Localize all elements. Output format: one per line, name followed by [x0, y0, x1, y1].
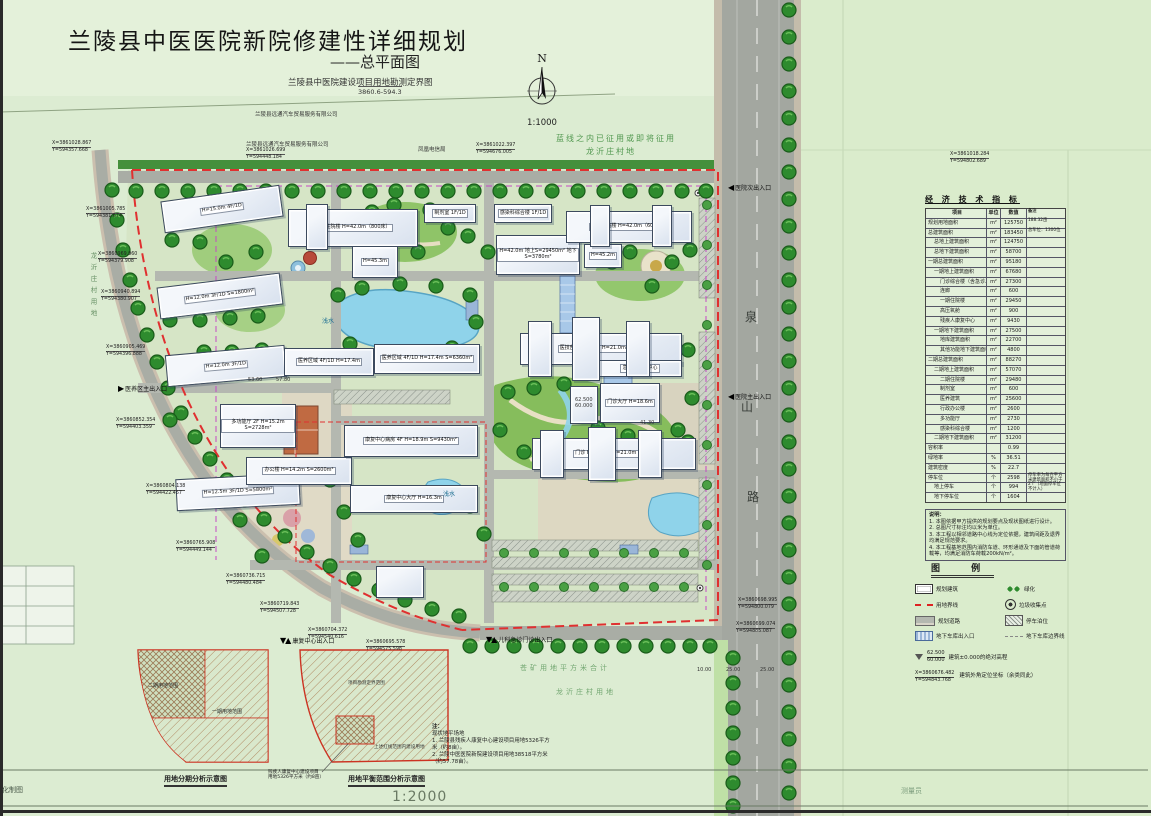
building-label: 康复中心大厅 H=16.3m	[384, 495, 444, 504]
bottom-note-line: 现状地平场地	[432, 731, 550, 738]
map-annotation: 60.000	[575, 403, 593, 409]
table-row: 停车位 个 2598 停车率为每百平方米建筑面积不小于2个（地面停车位不计入）	[926, 473, 1065, 483]
planned-building-symbol	[915, 584, 933, 594]
survey-range-label: 项目勘测定界范围	[348, 680, 385, 686]
site-plan-canvas: 兰陵县中医医院新院修建性详细规划 ——总平面图 兰陵县中医院建设项目用地勘测定界…	[0, 0, 1151, 816]
coordinate-callout: X=3860699.074 Y=594885.087	[736, 622, 775, 634]
map-annotation: 测量员	[901, 786, 922, 796]
bottom-note-line: 米（约8亩）。	[432, 745, 550, 752]
building	[528, 321, 552, 377]
map-annotation: 蓝线之内已征用或即将征用	[556, 133, 676, 144]
building	[540, 430, 564, 478]
building-label: 门诊大厅 H=18.6m	[605, 399, 655, 408]
indicator-table: 项目 单位 数值 备注 规划用地面积 m² 125750 188.32亩 总建筑…	[925, 208, 1066, 503]
table-row: 总地上建筑面积 m² 124750	[926, 237, 1065, 247]
table-row: 残疾人康复中心 m² 9430	[926, 316, 1065, 326]
legend-item: 规划建筑	[915, 584, 1003, 594]
building	[306, 204, 328, 250]
coordinate-callout: X=3861028.867 Y=594357.668	[52, 141, 91, 153]
corner-label: 建筑外角定位坐标（余类同此）	[959, 671, 1036, 679]
table-row: 二期地上建筑面积 m² 57070	[926, 365, 1065, 375]
table-row: 一期住院楼 m² 29450	[926, 296, 1065, 306]
building: 康复中心大厅 H=16.3m	[350, 485, 478, 513]
building-label: 制剂室 1F/1D	[432, 209, 467, 218]
table-row: 地下停车位 个 1604	[926, 492, 1065, 502]
map-annotation: 泉	[745, 308, 757, 325]
building-label: H=15.0m 4F/1D	[199, 202, 244, 217]
building-label: H=45.3m	[361, 258, 389, 267]
entrance-label: 医养区主出入口	[125, 384, 167, 393]
bottom-note: 注： 现状地平场地1. 兰陵县残疾人康复中心建设项目用地5326平方米（约8亩）…	[432, 724, 550, 766]
legend-label: 停车泊位	[1026, 617, 1048, 625]
map-annotation: 化制图	[2, 785, 23, 795]
coordinate-callout: X=3860940.894 Y=594380.907	[101, 290, 140, 302]
coordinate-callout: X=3860905.469 Y=594396.888	[106, 345, 145, 357]
bottom-note-line: 2. 兰陵中医医院新院建设项目用地38518平方米	[432, 752, 550, 759]
legend-label: 地下车库出入口	[936, 632, 975, 640]
legend-label: 地下车库边界线	[1026, 632, 1065, 640]
rehab-project-callout: 残疾人康复中心建设项目 用地5326平方米（约8亩）	[268, 770, 324, 781]
table-row: 多功能厅 m² 2730	[926, 414, 1065, 424]
building	[626, 321, 650, 377]
entrance-arrow-icon: ◀	[728, 184, 733, 192]
entrance-marker: ▼▲ 康复中心出入口	[280, 636, 334, 645]
building: 医养区域 4F/1D H=17.4m S=6360m²	[374, 344, 480, 374]
table-row: 地库建筑面积 m² 22700	[926, 335, 1065, 345]
map-annotation: 53.60	[248, 377, 262, 383]
entrance-arrow-icon: ◀	[728, 393, 733, 401]
table-row: 一期地下建筑面积 m² 27500	[926, 326, 1065, 336]
building-label: 多功能厅 2F H=15.2m S=2728m²	[221, 419, 295, 434]
table-row: 感染科综合楼 m² 1200	[926, 424, 1065, 434]
building-label: 康复中心病房 4F H=18.9m S=9430m²	[363, 437, 459, 446]
legend-item: 地下车库边界线	[1005, 631, 1097, 641]
building	[376, 566, 424, 598]
phase1-area-label: 一期用地范围	[212, 708, 242, 715]
corner-coordinate-note: X=3860676.482 Y=594843.768 建筑外角定位坐标（余类同此…	[915, 671, 1105, 683]
table-row: 二期住院楼 m² 29480	[926, 375, 1065, 385]
building	[588, 427, 616, 481]
greenery-symbol	[1005, 585, 1021, 593]
table-row: 容积率 0.99	[926, 443, 1065, 453]
table-row: 一期总建筑面积 m² 95180	[926, 257, 1065, 267]
map-annotation: 兰陵县远通汽车贸易服务有限公司	[246, 140, 329, 148]
table-row: 总地下建筑面积 m² 58700	[926, 247, 1065, 257]
legend-label: 绿化	[1024, 585, 1035, 593]
notes-lines: 1. 本图依据甲方提供的规划要点及现状图纸进行设计。2. 总图尺寸标注均以米为单…	[929, 519, 1062, 559]
legend-item: 绿化	[1005, 584, 1097, 594]
page-subtitle: ——总平面图	[330, 51, 420, 72]
building-label: H=45.2m	[589, 252, 617, 261]
survey-code: 3860.6-594.3	[358, 86, 402, 96]
building	[652, 205, 672, 247]
building: 门诊大厅 H=18.6m	[600, 383, 660, 423]
entrance-arrow-icon: ▼▲	[486, 636, 496, 644]
entrance-marker: ◀ 医院次出入口	[728, 183, 771, 192]
elevation-label: 建筑±0.000的绝对高程	[949, 653, 1008, 661]
table-row: 医养建筑 m² 25600	[926, 394, 1065, 404]
table-row: 制剂室 m² 600	[926, 384, 1065, 394]
building: 制剂室 1F/1D	[424, 204, 476, 223]
table-title: 经 济 技 术 指 标	[925, 194, 1066, 205]
entrance-label: 康复中心出入口	[292, 636, 334, 645]
table-row: 门诊综合楼（含急诊、医技） m² 27300	[926, 277, 1065, 287]
map-annotation: 41.30	[640, 420, 654, 426]
table-row: 绿地率 % 36.51	[926, 453, 1065, 463]
building-label: H=42.0m 地上S=29450m² 地下S=3780m²	[497, 248, 579, 263]
elevation-mark-icon	[915, 654, 923, 660]
phase-inset-caption: 用地分期分析示意图	[164, 774, 227, 787]
map-annotation: 兰陵县远通汽车贸易服务有限公司	[255, 110, 338, 118]
table-row: 总建筑面积 m² 183450 总车位：1300位	[926, 228, 1065, 238]
table-row: 规划用地面积 m² 125750 188.32亩	[926, 218, 1065, 228]
building: 一期住院楼 H=42.0m（600床）	[566, 211, 692, 243]
map-annotation: 25.00	[726, 667, 740, 673]
coordinate-callout: X=3861018.284 Y=594802.689	[950, 152, 989, 164]
map-annotation: 25.00	[760, 667, 774, 673]
legend-label: 用地界线	[936, 601, 958, 609]
entrance-label: 医院主出入口	[735, 392, 771, 401]
table-row: 二期地下建筑面积 m² 31200	[926, 433, 1065, 443]
coordinate-callout: X=3861005.785 Y=594381.674	[86, 207, 125, 219]
legend-item: 用地界线	[915, 599, 1003, 610]
building: 感染科综合楼 1F/1D	[494, 204, 552, 223]
building-label: H=12.0m 3F/1D S=1800m²	[183, 287, 256, 305]
garage-entry-symbol	[915, 631, 933, 641]
building: 多功能厅 2F H=15.2m S=2728m²	[220, 404, 296, 448]
bottom-note-line: （约57.78亩）。	[432, 759, 550, 766]
legend-title: 图 例	[931, 561, 994, 578]
notes-title: 说明：	[929, 512, 1062, 519]
building: H=45.2m	[584, 244, 622, 268]
note-line: 2. 总图尺寸标注均以米为单位。	[929, 525, 1062, 532]
compass-icon	[522, 65, 562, 113]
entrance-marker: ▶ 医养区主出入口	[118, 384, 167, 393]
map-annotation: 龙沂庄村用地	[556, 687, 616, 697]
legend-item: 垃圾收集点	[1005, 599, 1097, 610]
map-annotation: 10.00	[697, 667, 711, 673]
coordinate-callout: X=3860852.354 Y=594403.359	[116, 418, 155, 430]
coordinate-callout: X=3861026.699 Y=594448.184	[246, 148, 285, 160]
map-annotation: 浅水	[322, 316, 334, 325]
table-row: 二期总建筑面积 m² 88270	[926, 355, 1065, 365]
building: 康复中心病房 4F H=18.9m S=9430m²	[344, 425, 478, 457]
coordinate-callout: X=3860969.960 Y=594379.908	[98, 252, 137, 264]
legend-item: 地下车库出入口	[915, 631, 1003, 641]
building-label: H=12.0m 3F/1D	[204, 360, 249, 373]
table-row: 一期地上建筑面积 m² 67680	[926, 267, 1065, 277]
legend: 图 例 规划建筑 绿化 用地界线	[915, 556, 1105, 683]
table-row: 高压氧舱 m² 900	[926, 306, 1065, 316]
corner-y: Y=594843.768	[915, 678, 951, 683]
building	[638, 430, 662, 478]
parking-symbol	[1005, 615, 1023, 626]
coordinate-callout: X=3860736.715 Y=594480.484	[226, 574, 265, 586]
building: H=45.3m	[352, 246, 398, 278]
building-label: 办公楼 H=14.2m S=2600m²	[262, 467, 335, 476]
design-notes: 说明： 1. 本图依据甲方提供的规划要点及现状图纸进行设计。2. 总图尺寸标注均…	[925, 509, 1066, 561]
building: 医养区域 4F/1D H=17.4m	[284, 348, 374, 376]
legend-items: 规划建筑 绿化 用地界线 垃圾收集点	[915, 584, 1105, 641]
bottom-note-title: 注：	[432, 724, 550, 731]
legend-label: 规划建筑	[936, 585, 958, 593]
map-annotation: 龙沂庄村用地	[88, 252, 98, 321]
table-header-row: 项目 单位 数值 备注	[926, 209, 1065, 218]
phase2-area-label: 二期用地范围	[148, 682, 178, 689]
legend-item: 规划道路	[915, 615, 1003, 626]
north-label: N	[518, 52, 566, 65]
legend-label: 规划道路	[938, 617, 960, 625]
map-annotation: 苍矿用地平方米合计	[520, 663, 610, 673]
entrance-label: 儿科急诊门诊出入口	[498, 635, 552, 644]
building-label: 感染科综合楼 1F/1D	[498, 209, 548, 218]
elevation-lower: 60.000	[927, 657, 945, 663]
table-row: 地上停车 个 994	[926, 482, 1065, 492]
coordinate-callout: X=3860698.995 Y=594800.079	[738, 598, 777, 610]
map-annotation: 凤凰电信局	[418, 145, 446, 153]
bottom-note-line: 1. 兰陵县残疾人康复中心建设项目用地5326平方	[432, 738, 550, 745]
entrance-marker: ▼▲ 儿科急诊门诊出入口	[486, 635, 552, 644]
table-body: 规划用地面积 m² 125750 188.32亩 总建筑面积 m² 183450…	[926, 218, 1065, 502]
legend-item: 停车泊位	[1005, 615, 1097, 626]
map-annotation: 浅水	[443, 489, 455, 498]
planned-road-symbol	[915, 616, 935, 626]
coordinate-callout: X=3860719.843 Y=594507.728	[260, 602, 299, 614]
note-line: 3. 本工程以相邻道路中心线为定位依据，建筑间距及退界均满足规范要求。	[929, 532, 1062, 545]
building-label: 医养区域 4F/1D H=17.4m	[296, 358, 362, 367]
coordinate-callout: X=3861022.397 Y=594676.005	[476, 143, 515, 155]
coordinate-callout: X=3860695.578 Y=594575.598	[366, 640, 405, 652]
map-scale: 1:1000	[518, 118, 566, 128]
trash-point-symbol	[1005, 599, 1016, 610]
site-boundary-symbol	[915, 604, 933, 606]
economic-indicator-panel: 经 济 技 术 指 标 项目 单位 数值 备注 规划用地面积 m² 125750…	[925, 194, 1066, 561]
garage-boundary-symbol	[1005, 636, 1023, 637]
coordinate-callout: X=3860804.138 Y=594422.457	[146, 484, 185, 496]
legend-label: 垃圾收集点	[1019, 601, 1047, 609]
map-annotation: 龙沂庄村地	[586, 146, 636, 157]
building-label: H=12.5m 3F/1D S=5800m²	[201, 486, 274, 499]
entrance-marker: ◀ 医院主出入口	[728, 392, 771, 401]
entrance-arrow-icon: ▼▲	[280, 637, 290, 645]
building	[572, 317, 600, 381]
map-annotation: 路	[747, 488, 759, 505]
construction-land-label: 上述红线范围内建设用地	[374, 744, 425, 750]
inset-scale: 1:2000	[392, 789, 447, 805]
map-annotation: 57.80	[276, 377, 290, 383]
balance-inset-caption: 用地平衡范围分析示意图	[348, 774, 425, 787]
bottom-note-lines: 现状地平场地1. 兰陵县残疾人康复中心建设项目用地5326平方米（约8亩）。2.…	[432, 731, 550, 766]
entrance-label: 医院次出入口	[735, 183, 771, 192]
table-row: 其他功能地下建筑面积 m² 4800	[926, 345, 1065, 355]
entrance-arrow-icon: ▶	[118, 385, 123, 393]
north-arrow: N 1:1000	[518, 52, 566, 128]
building: 办公楼 H=14.2m S=2600m²	[246, 457, 352, 485]
table-row: 连廊 m² 600	[926, 286, 1065, 296]
table-row: 行政办公楼 m² 2600	[926, 404, 1065, 414]
building-label: 医养区域 4F/1D H=17.4m S=6360m²	[380, 355, 474, 364]
corner-x: X=3860676.482	[915, 671, 954, 678]
building	[590, 205, 610, 247]
elevation-note: 62.500 60.000 建筑±0.000的绝对高程	[915, 651, 1105, 663]
coordinate-callout: X=3860765.908 Y=594449.144	[176, 541, 215, 553]
table-row: 建筑密度 % 22.7	[926, 463, 1065, 473]
